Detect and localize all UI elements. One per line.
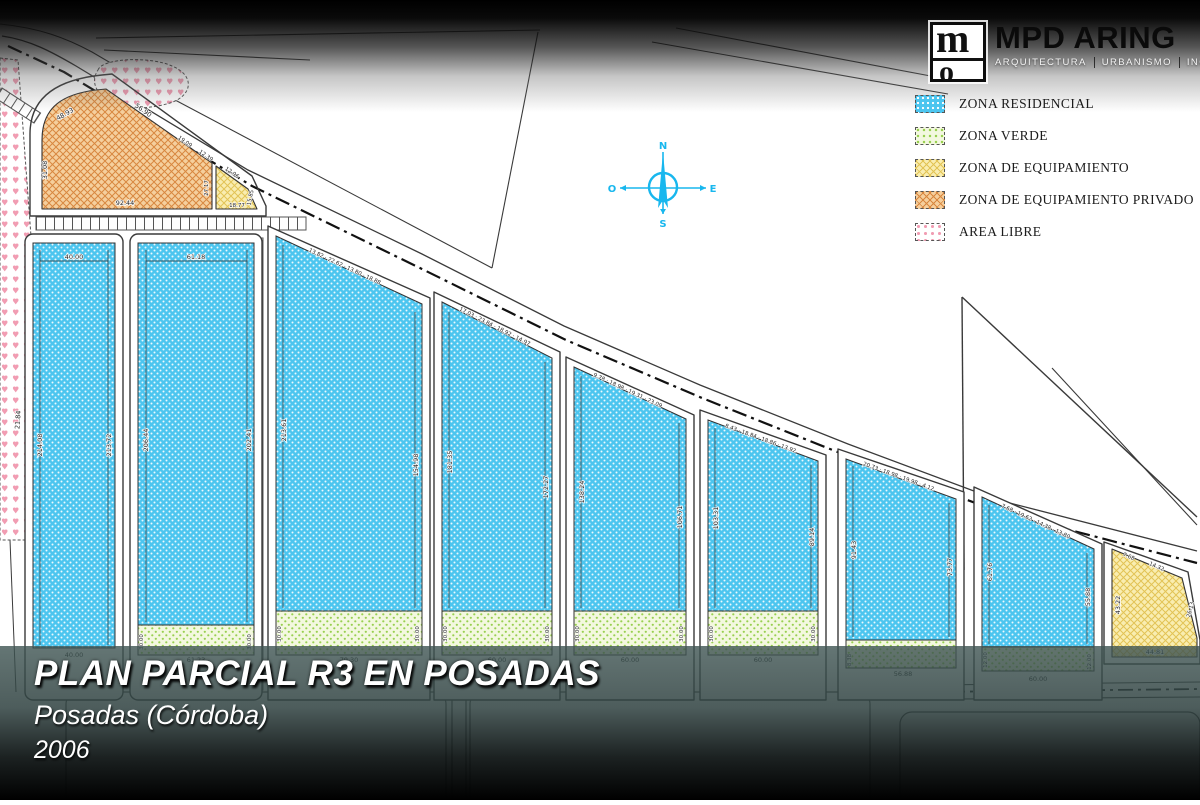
zona-verde bbox=[138, 625, 254, 655]
dim-label: 12.00 bbox=[983, 652, 989, 668]
dim-label: 60.00 bbox=[621, 656, 640, 664]
dim-label: 30.00 bbox=[443, 626, 449, 642]
logo-sub-urbanismo: URBANISMO bbox=[1094, 57, 1179, 68]
legend-label: ZONA VERDE bbox=[959, 128, 1048, 144]
logo-sub-ingenieria: INGENIERÍA bbox=[1179, 57, 1200, 68]
dim-label: 30.00 bbox=[679, 626, 685, 642]
legend-swatch-equipamiento-privado bbox=[915, 191, 945, 209]
compass-e: E bbox=[710, 184, 717, 195]
zona-verde bbox=[846, 640, 956, 668]
dim-label: 30.00 bbox=[277, 626, 283, 642]
dim-label: 30.00 bbox=[139, 634, 145, 650]
zona-verde bbox=[442, 611, 552, 655]
compass-n: N bbox=[659, 141, 667, 152]
dim-label: 43.22 bbox=[1114, 596, 1122, 615]
dim-label: 106.71 bbox=[676, 506, 684, 529]
monogram-o: o bbox=[939, 55, 954, 89]
dim-label: 138.24 bbox=[578, 481, 586, 504]
dim-label: 89.14 bbox=[808, 528, 816, 547]
legend-item-area-libre: AREA LIBRE bbox=[915, 222, 1194, 241]
compass-rose: N S E O bbox=[608, 141, 717, 230]
legend-label: ZONA DE EQUIPAMIENTO PRIVADO bbox=[959, 192, 1194, 208]
dim-label: 44.81 bbox=[1146, 648, 1165, 656]
dim-label: 213.72 bbox=[105, 434, 113, 457]
dim-label: 56.88 bbox=[894, 670, 913, 678]
dim-label: 30.00 bbox=[545, 626, 551, 642]
block-residencial-6: 8.43 · 18.84 · 18.86 · 13.92 103.31 89.1… bbox=[700, 410, 826, 700]
legend-label: ZONA DE EQUIPAMIENTO bbox=[959, 160, 1129, 176]
block-residencial-7: 20.73 · 18.98 · 19.98 · 4.12 91.43 73.77… bbox=[838, 449, 964, 700]
block-residencial-1: 40.00 214.08 213.72 40.00 bbox=[25, 234, 123, 700]
dim-label: 40.00 bbox=[65, 651, 84, 659]
legend-item-equipamiento-privado: ZONA DE EQUIPAMIENTO PRIVADO bbox=[915, 190, 1194, 209]
dim-label: 31.08 bbox=[41, 161, 49, 180]
dim-label: 202.41 bbox=[245, 429, 253, 452]
zona-verde bbox=[574, 611, 686, 655]
dim-label: 18.77 bbox=[229, 203, 245, 209]
dim-label: 21.84 bbox=[13, 410, 22, 429]
dim-label: 30.00 bbox=[811, 626, 817, 642]
dim-label: 30.00 bbox=[709, 626, 715, 642]
dim-label: 92.44 bbox=[116, 199, 135, 207]
dim-label: 79.30 bbox=[340, 656, 359, 664]
company-logo: m o MPD ARING ARQUITECTURA URBANISMO ING… bbox=[930, 22, 1200, 82]
block-residencial-3: 13.82 · 22.62 · 13.80 · 18.88 213.61 154… bbox=[268, 226, 430, 700]
dim-label: 55.88 bbox=[1084, 588, 1092, 607]
dim-label: 73.77 bbox=[946, 558, 954, 577]
block-residencial-8: 7.68 · 19.62 · 14.38 · 13.80 61.76 55.88… bbox=[974, 487, 1102, 700]
dim-label: 213.61 bbox=[280, 419, 288, 442]
dim-label: 60.00 bbox=[488, 656, 507, 664]
dim-label: 8.38 bbox=[847, 653, 853, 666]
legend-swatch-equipamiento bbox=[915, 159, 945, 177]
dim-label: 61.76 bbox=[986, 563, 994, 582]
legend-swatch-verde bbox=[915, 127, 945, 145]
legend-item-equipamiento: ZONA DE EQUIPAMIENTO bbox=[915, 158, 1194, 177]
dim-label: 181.35 bbox=[446, 451, 454, 474]
dim-label: 60.00 bbox=[1029, 675, 1048, 683]
legend-label: AREA LIBRE bbox=[959, 224, 1041, 240]
block-residencial-5: 9.78 · 18.98 · 19.31 · 23.09 138.24 106.… bbox=[566, 357, 694, 700]
logo-title: MPD ARING bbox=[995, 22, 1200, 55]
legend-swatch-area-libre bbox=[915, 223, 945, 241]
dim-label: 61.18 bbox=[187, 253, 206, 261]
legend-item-residencial: ZONA RESIDENCIAL bbox=[915, 94, 1194, 113]
dim-label: 30.00 bbox=[415, 626, 421, 642]
legend-item-verde: ZONA VERDE bbox=[915, 126, 1194, 145]
dim-label: 91.43 bbox=[850, 541, 858, 560]
compass-s: S bbox=[659, 219, 666, 230]
dim-label: 103.31 bbox=[712, 507, 720, 530]
dim-label: 214.08 bbox=[36, 434, 44, 457]
dim-label: 154.98 bbox=[412, 454, 420, 477]
dim-label: 172.27 bbox=[542, 476, 550, 499]
dim-label: 12.00 bbox=[1087, 654, 1093, 670]
dim-label: 40.00 bbox=[65, 253, 84, 261]
legend-label: ZONA RESIDENCIAL bbox=[959, 96, 1094, 112]
logo-subtitle: ARQUITECTURA URBANISMO INGENIERÍA bbox=[995, 57, 1200, 68]
compass-o: O bbox=[608, 184, 617, 195]
dim-label: 30.00 bbox=[575, 626, 581, 642]
dim-label: 27.17 bbox=[204, 180, 210, 196]
zona-verde bbox=[708, 611, 818, 655]
block-residencial-2: 61.18 206.44 202.41 61.23 30.00 30.00 bbox=[130, 234, 262, 700]
dim-label: 30.00 bbox=[247, 634, 253, 650]
legend: ZONA RESIDENCIAL ZONA VERDE ZONA DE EQUI… bbox=[915, 94, 1194, 241]
block-residencial-4: 17.03 · 23.84 · 18.92 · 14.97 181.35 172… bbox=[434, 292, 560, 700]
dim-label: 61.23 bbox=[187, 656, 206, 664]
logo-sub-arquitectura: ARQUITECTURA bbox=[995, 57, 1094, 68]
legend-swatch-residencial bbox=[915, 95, 945, 113]
dim-label: 206.44 bbox=[142, 429, 150, 452]
logo-monogram-icon: m o bbox=[930, 22, 986, 82]
dim-label: 60.00 bbox=[754, 656, 773, 664]
zona-verde bbox=[276, 611, 422, 655]
zona-verde bbox=[982, 647, 1094, 671]
